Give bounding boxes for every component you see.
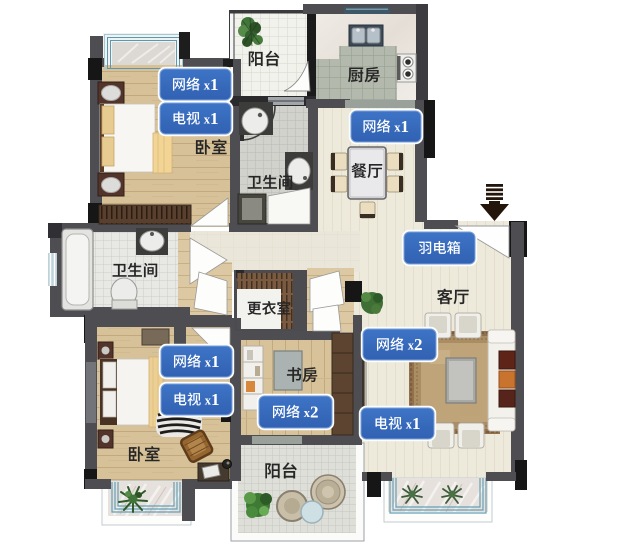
svg-text:x1: x1	[204, 75, 219, 94]
svg-text:x1: x1	[394, 117, 409, 136]
svg-text:x1: x1	[406, 414, 421, 433]
svg-text:x1: x1	[205, 352, 220, 371]
svg-text:x2: x2	[304, 403, 319, 422]
svg-text:x1: x1	[205, 390, 220, 409]
svg-text:x1: x1	[204, 109, 219, 128]
svg-text:x2: x2	[408, 335, 423, 354]
